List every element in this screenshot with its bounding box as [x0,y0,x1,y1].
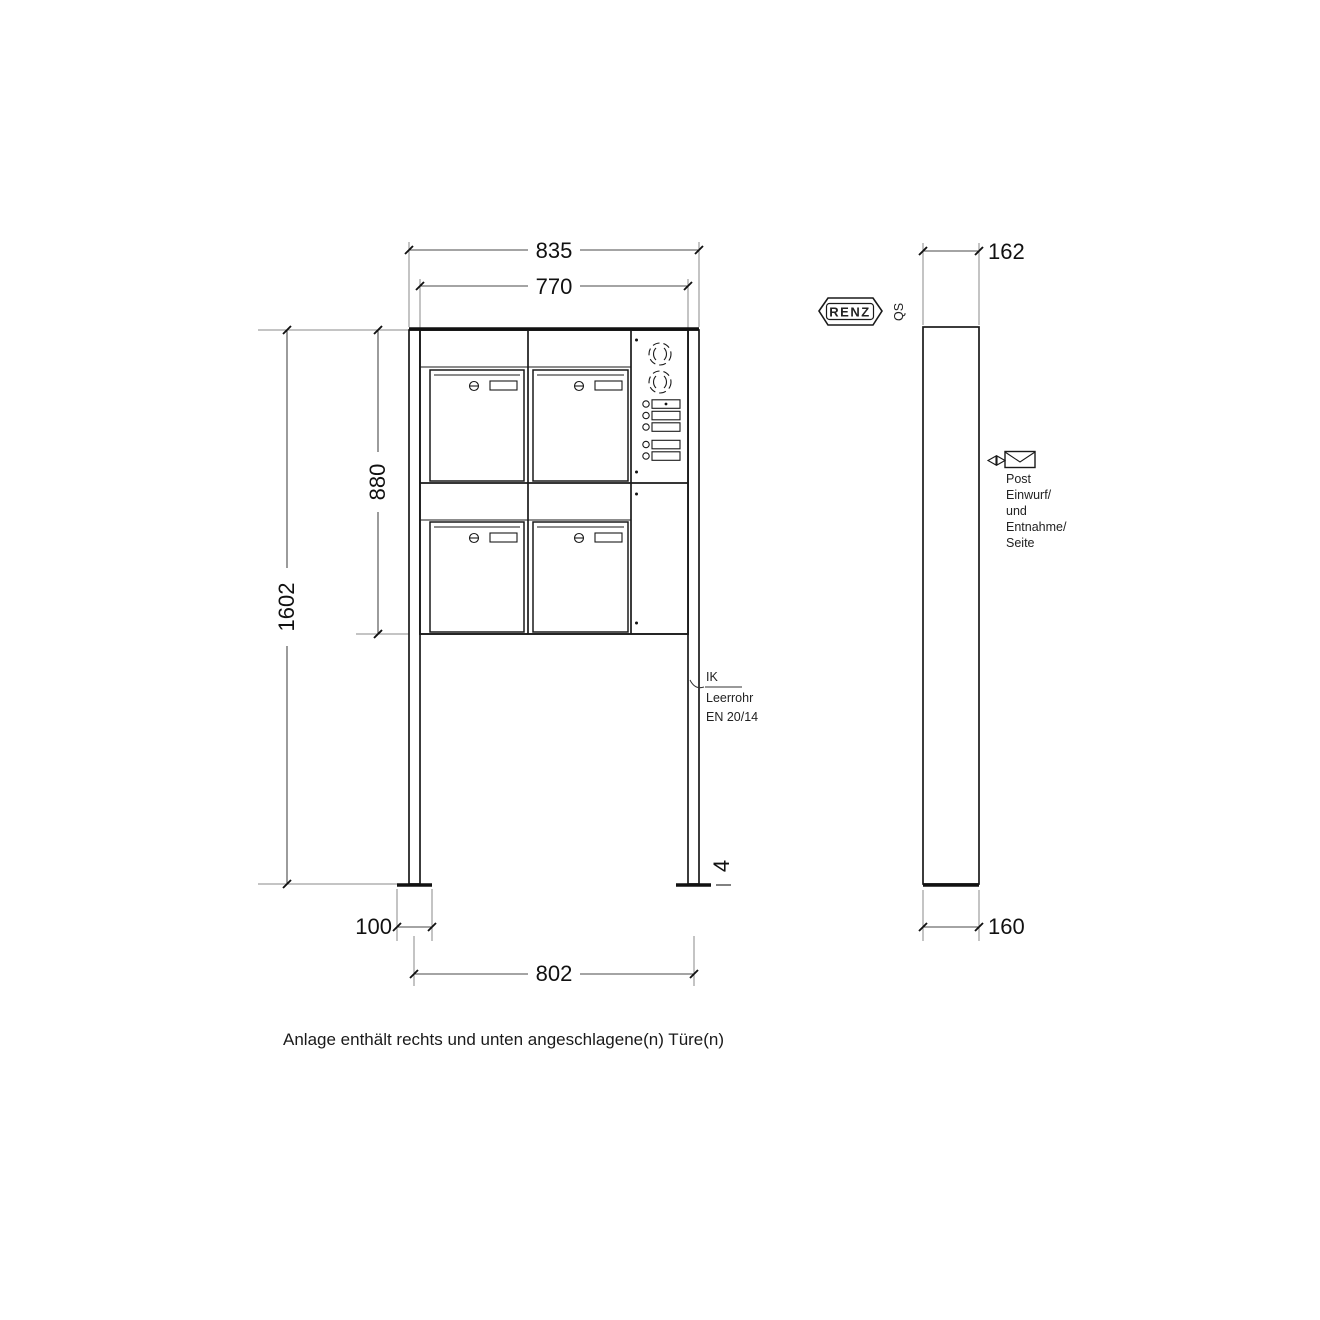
renz-logo: RENZ QS [819,298,906,325]
arrows-icon [988,456,1005,465]
conduit-leader-label: IK Leerrohr EN 20/14 [690,670,758,724]
left-post [409,330,420,884]
dim-side-foot-depth: 160 [988,914,1025,939]
qs-label: QS [892,303,906,321]
mailbox-door-1 [430,370,524,481]
dim-foot-width: 100 [355,914,392,939]
mailbox-door-3 [430,522,524,632]
note-line-3: und [1006,504,1027,518]
note-line-4: Entnahme/ [1006,520,1067,534]
side-profile [923,327,979,884]
mailbox-dimension-drawing: IK Leerrohr EN 20/14 Post Einwurf/ und E… [0,0,1320,1320]
dim-total-height: 1602 [274,583,299,632]
leader-line-1: IK [706,670,718,684]
brand-name: RENZ [829,305,870,320]
dim-body-height: 880 [365,464,390,501]
dim-side-depth: 162 [988,239,1025,264]
dim-base-gap: 4 [709,860,734,872]
right-post [688,330,699,884]
leader-line-2: Leerrohr [706,691,753,705]
note-line-1: Post [1006,472,1032,486]
front-view: IK Leerrohr EN 20/14 [397,329,758,885]
dim-anchor-spacing: 802 [536,961,573,986]
mailbox-door-2 [533,370,628,481]
envelope-icon [1005,452,1035,468]
note-line-5: Seite [1006,536,1035,550]
dim-total-width: 835 [536,238,573,263]
technical-drawing-page: IK Leerrohr EN 20/14 Post Einwurf/ und E… [0,0,1320,1320]
side-view: Post Einwurf/ und Entnahme/ Seite [923,327,1067,885]
dim-body-width: 770 [536,274,573,299]
drawing-caption: Anlage enthält rechts und unten angeschl… [283,1030,724,1049]
leader-line-3: EN 20/14 [706,710,758,724]
note-line-2: Einwurf/ [1006,488,1052,502]
mailbox-door-4 [533,522,628,632]
postal-side-note: Post Einwurf/ und Entnahme/ Seite [988,452,1067,551]
